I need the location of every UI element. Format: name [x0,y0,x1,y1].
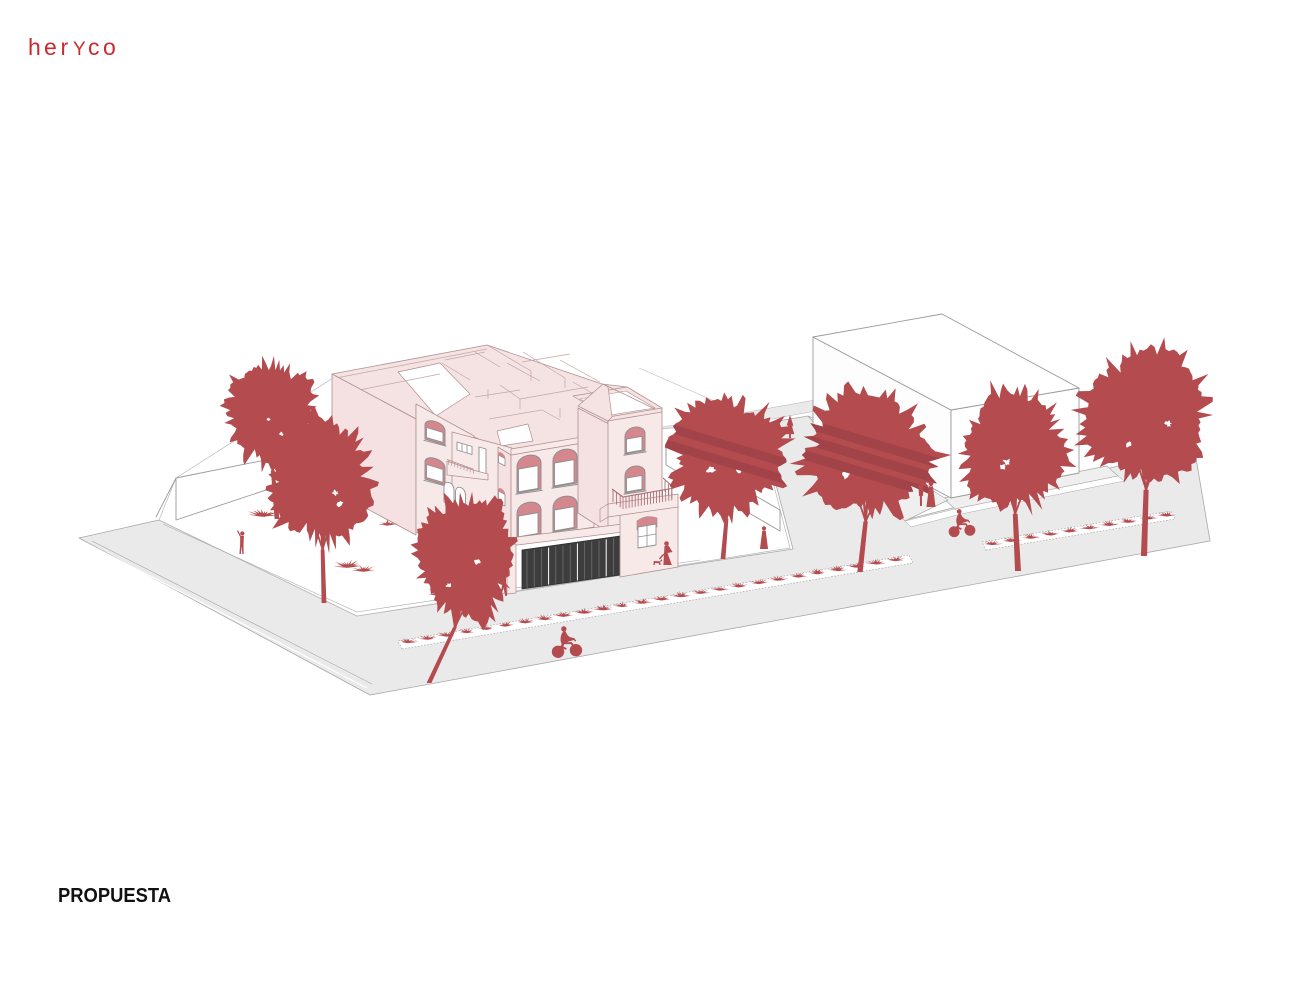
svg-text:h: h [28,34,41,60]
svg-text:e: e [44,34,57,60]
svg-text:PROPUESTA: PROPUESTA [58,884,171,907]
svg-text:o: o [103,34,116,60]
svg-text:Y: Y [73,39,86,60]
svg-text:c: c [88,34,100,60]
svg-text:r: r [61,34,69,60]
